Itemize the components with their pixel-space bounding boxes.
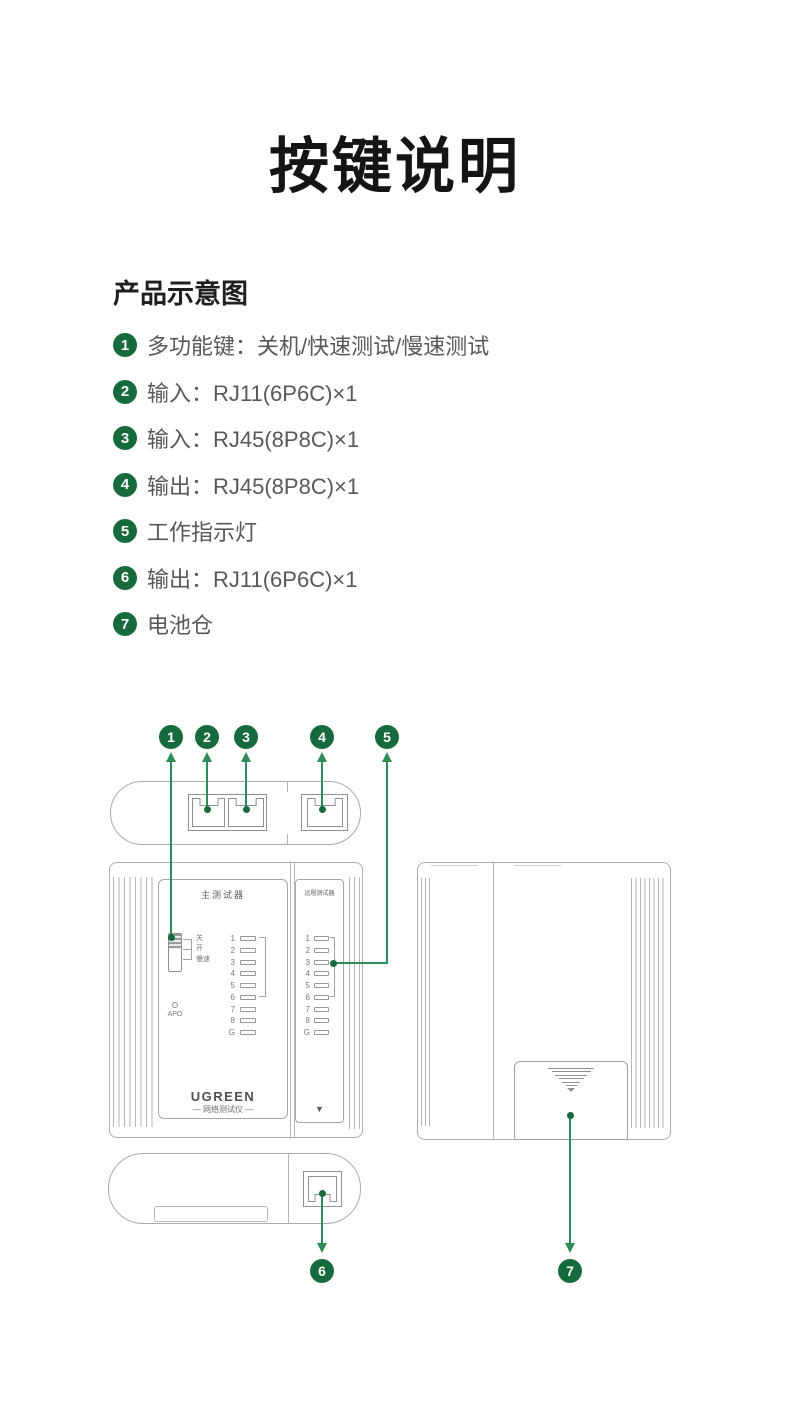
led-row-remote-8: 8	[300, 1016, 329, 1025]
led-row-remote-3: 3	[300, 958, 329, 967]
callout-line-5-h	[333, 962, 388, 964]
main-panel-label: 主测试器	[159, 888, 287, 901]
remote-arrow-mark: ▼	[296, 1104, 343, 1114]
legend-text-3: 输入：RJ45(8P8C)×1	[147, 422, 359, 454]
led-label: 1	[300, 934, 310, 943]
led-row-main-3: 3	[217, 958, 256, 967]
legend-text-4: 输出：RJ45(8P8C)×1	[147, 469, 359, 501]
led-label: 5	[300, 981, 310, 990]
bottom-label-recess	[154, 1206, 268, 1222]
callout-dot-2	[204, 806, 211, 813]
led-label: 3	[300, 958, 310, 967]
remote-port-frame	[301, 794, 348, 831]
callout-dot-5	[330, 960, 337, 967]
callout-dot-4	[319, 806, 326, 813]
callout-dot-3	[243, 806, 250, 813]
switch-label-slow: 慢速	[196, 956, 210, 964]
legend-badge-4: 4	[113, 473, 137, 497]
led-row-main-7: 7	[217, 1005, 256, 1014]
callout-line-3	[245, 760, 247, 809]
led-indicator	[240, 1018, 256, 1023]
led-indicator	[314, 948, 329, 953]
callout-4: 4	[310, 725, 334, 749]
callout-1: 1	[159, 725, 183, 749]
legend-badge-1: 1	[113, 333, 137, 357]
led-row-remote-6: 6	[300, 993, 329, 1002]
led-label: 7	[217, 1005, 235, 1014]
device-bottom-view	[108, 1153, 361, 1224]
legend-text-2: 输入：RJ11(6P6C)×1	[147, 376, 358, 408]
legend-text-1: 多功能键：关机/快速测试/慢速测试	[147, 329, 489, 361]
callout-dot-7	[567, 1112, 574, 1119]
led-row-main-g: G	[217, 1028, 256, 1037]
led-indicator	[240, 948, 256, 953]
led-label: 8	[300, 1016, 310, 1025]
legend-badge-6: 6	[113, 566, 137, 590]
led-indicator	[314, 1007, 329, 1012]
led-indicator	[314, 1030, 329, 1035]
led-row-main-4: 4	[217, 969, 256, 978]
device-top-view	[110, 781, 361, 845]
legend-text-7: 电池仓	[147, 608, 213, 640]
led-label: 8	[217, 1016, 235, 1025]
back-left-grip	[421, 878, 431, 1126]
led-indicator	[240, 936, 256, 941]
dual-port-frame	[188, 794, 267, 831]
led-indicator	[240, 971, 256, 976]
led-indicator	[240, 1030, 256, 1035]
led-label: 2	[300, 946, 310, 955]
page-title: 按键说明	[0, 118, 790, 205]
body-seam-line	[290, 863, 291, 1137]
callout-dot-1	[168, 934, 175, 941]
led-label: G	[217, 1028, 235, 1037]
callout-2: 2	[195, 725, 219, 749]
led-row-remote-7: 7	[300, 1005, 329, 1014]
legend-badge-7: 7	[113, 612, 137, 636]
led-indicator	[314, 936, 329, 941]
led-indicator	[240, 995, 256, 1000]
callout-line-2	[206, 760, 208, 809]
callout-line-7	[569, 1118, 571, 1244]
legend-item-1: 1 多功能键：关机/快速测试/慢速测试	[113, 322, 489, 369]
device-back-view	[417, 862, 671, 1140]
led-row-remote-g: G	[300, 1028, 329, 1037]
callout-5: 5	[375, 725, 399, 749]
callout-3: 3	[234, 725, 258, 749]
legend-item-2: 2 输入：RJ11(6P6C)×1	[113, 369, 489, 416]
arrowhead-6	[317, 1243, 327, 1253]
legend-text-5: 工作指示灯	[147, 515, 257, 547]
legend-badge-3: 3	[113, 426, 137, 450]
rj45-output-port	[307, 798, 343, 827]
led-indicator	[314, 983, 329, 988]
callout-line-1	[170, 760, 172, 938]
led-row-remote-4: 4	[300, 969, 329, 978]
led-label: 3	[217, 958, 235, 967]
led-indicator	[240, 960, 256, 965]
led-label: 1	[217, 934, 235, 943]
legend-badge-2: 2	[113, 380, 137, 404]
top-notch-left	[431, 863, 478, 866]
section-heading: 产品示意图	[113, 272, 248, 311]
seam-notch-bottom	[287, 834, 288, 844]
brand-logo: UGREEN	[159, 1089, 287, 1104]
led-row-main-2: 2	[217, 946, 256, 955]
led-indicator	[240, 1007, 256, 1012]
led-label: 5	[217, 981, 235, 990]
led-row-remote-1: 1	[300, 934, 329, 943]
device-front-view: 主测试器 关 开 慢速 APO 1 2 3	[109, 862, 363, 1138]
battery-door	[514, 1061, 628, 1140]
led-label: G	[300, 1028, 310, 1037]
led-indicator	[314, 960, 329, 965]
right-grip-texture	[349, 877, 361, 1129]
led-indicator	[314, 995, 329, 1000]
led-label: 7	[300, 1005, 310, 1014]
remote-panel-label: 远程测试器	[296, 888, 343, 897]
led-label: 4	[300, 969, 310, 978]
legend-list: 1 多功能键：关机/快速测试/慢速测试 2 输入：RJ11(6P6C)×1 3 …	[113, 322, 489, 648]
left-grip-texture	[113, 877, 153, 1127]
apo-led	[172, 1002, 178, 1008]
callout-line-4	[321, 760, 323, 809]
callout-7: 7	[558, 1259, 582, 1283]
led-label: 6	[217, 993, 235, 1002]
led-row-main-1: 1	[217, 934, 256, 943]
led-label: 2	[217, 946, 235, 955]
back-seam-line	[493, 863, 494, 1139]
legend-item-6: 6 输出：RJ11(6P6C)×1	[113, 555, 489, 602]
switch-label-tick	[183, 949, 192, 950]
battery-grip-triangle	[515, 1065, 627, 1092]
remote-tester-panel: 远程测试器 1 2 3 4 5 6 7	[295, 879, 344, 1123]
bottom-seam-line	[288, 1154, 289, 1223]
led-label: 4	[217, 969, 235, 978]
page: { "page": { "title": "按键说明", "section_he…	[0, 0, 790, 1425]
led-indicator	[314, 971, 329, 976]
apo-label: APO	[162, 1011, 188, 1019]
back-right-grip	[631, 878, 665, 1128]
switch-label-on: 开	[196, 945, 203, 953]
led-row-remote-5: 5	[300, 981, 329, 990]
led-row-main-8: 8	[217, 1016, 256, 1025]
led-row-main-5: 5	[217, 981, 256, 990]
seam-notch-top	[287, 782, 288, 792]
arrowhead-7	[565, 1243, 575, 1253]
led-bracket-remote	[330, 937, 335, 997]
legend-text-6: 输出：RJ11(6P6C)×1	[147, 562, 358, 594]
product-diagram: 主测试器 关 开 慢速 APO 1 2 3	[0, 720, 790, 1320]
callout-dot-6	[319, 1190, 326, 1197]
top-notch-right	[514, 863, 561, 866]
callout-line-5-v	[386, 760, 388, 964]
legend-badge-5: 5	[113, 519, 137, 543]
led-row-main-6: 6	[217, 993, 256, 1002]
led-indicator	[314, 1018, 329, 1023]
switch-label-off: 关	[196, 935, 203, 943]
legend-item-7: 7 电池仓	[113, 601, 489, 648]
led-label: 6	[300, 993, 310, 1002]
legend-item-4: 4 输出：RJ45(8P8C)×1	[113, 462, 489, 509]
led-indicator	[240, 983, 256, 988]
brand-subtitle: — 网络测试仪 —	[159, 1104, 287, 1115]
main-tester-panel: 主测试器 关 开 慢速 APO 1 2 3	[158, 879, 288, 1119]
callout-line-6	[321, 1196, 323, 1244]
led-bracket-main	[259, 937, 266, 997]
legend-item-5: 5 工作指示灯	[113, 508, 489, 555]
legend-item-3: 3 输入：RJ45(8P8C)×1	[113, 415, 489, 462]
led-row-remote-2: 2	[300, 946, 329, 955]
callout-6: 6	[310, 1259, 334, 1283]
